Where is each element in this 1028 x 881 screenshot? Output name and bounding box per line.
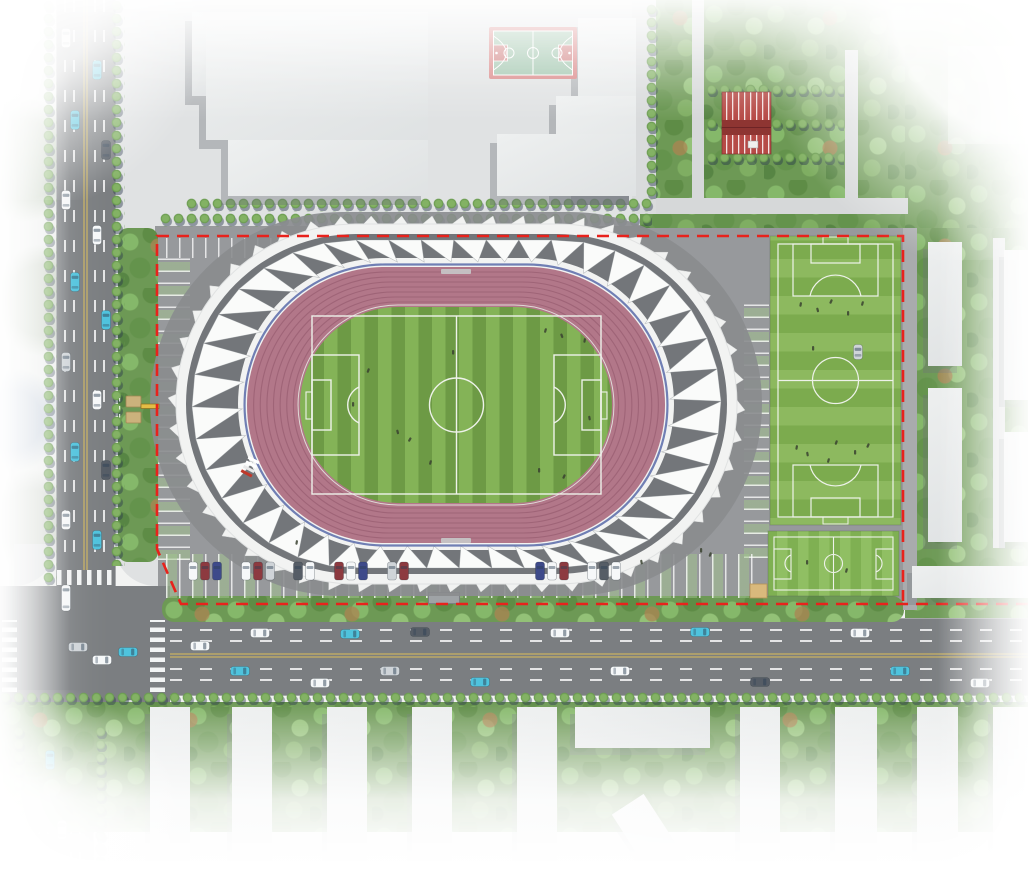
car — [93, 656, 112, 665]
car — [93, 61, 102, 80]
car — [102, 461, 111, 480]
car — [102, 311, 111, 330]
basketball-court — [489, 27, 577, 79]
parked-car — [189, 562, 198, 580]
car — [62, 191, 71, 210]
site-plan-canvas — [0, 0, 1028, 881]
parked-car — [560, 562, 569, 580]
site-plan-svg — [0, 0, 1028, 881]
pedestrians — [700, 548, 702, 553]
kiosk-hut — [750, 584, 767, 598]
car — [93, 391, 102, 410]
parked-car — [201, 562, 210, 580]
parked-car — [600, 562, 609, 580]
car — [891, 667, 910, 676]
red-stand — [722, 92, 771, 154]
parked-car — [254, 562, 263, 580]
car — [411, 628, 430, 637]
car — [71, 111, 80, 130]
main-pitch — [300, 307, 612, 503]
parked-cars — [189, 562, 621, 580]
car — [851, 629, 870, 638]
parked-car — [213, 562, 222, 580]
car — [341, 630, 360, 639]
car — [58, 821, 67, 840]
parked-car — [612, 562, 621, 580]
practice-field-small — [768, 531, 899, 596]
car — [102, 141, 111, 160]
main-stadium — [150, 212, 762, 596]
car — [971, 679, 990, 688]
parked-car — [536, 562, 545, 580]
car — [46, 751, 55, 770]
car — [611, 667, 630, 676]
pedestrians — [708, 552, 712, 557]
car — [551, 629, 570, 638]
parked-car — [347, 562, 356, 580]
parked-car — [335, 562, 344, 580]
car — [71, 273, 80, 292]
parked-car — [388, 562, 397, 580]
car — [311, 679, 330, 688]
car — [71, 443, 80, 462]
car — [854, 345, 863, 360]
car — [69, 643, 88, 652]
car — [62, 511, 71, 530]
parked-car — [359, 562, 368, 580]
parked-car — [242, 562, 251, 580]
car — [93, 226, 102, 245]
car — [251, 629, 270, 638]
practice-field-large — [770, 236, 901, 525]
parked-car — [306, 562, 315, 580]
car — [119, 648, 138, 657]
car — [62, 353, 71, 372]
parked-car — [588, 562, 597, 580]
car — [93, 531, 102, 550]
car — [381, 667, 400, 676]
car — [62, 585, 71, 611]
car — [231, 667, 250, 676]
car — [751, 678, 770, 687]
car — [191, 642, 210, 651]
car — [471, 678, 490, 687]
parked-car — [400, 562, 409, 580]
car — [691, 628, 710, 637]
parked-car — [294, 562, 303, 580]
parked-car — [266, 562, 275, 580]
car — [62, 29, 71, 48]
parked-car — [548, 562, 557, 580]
